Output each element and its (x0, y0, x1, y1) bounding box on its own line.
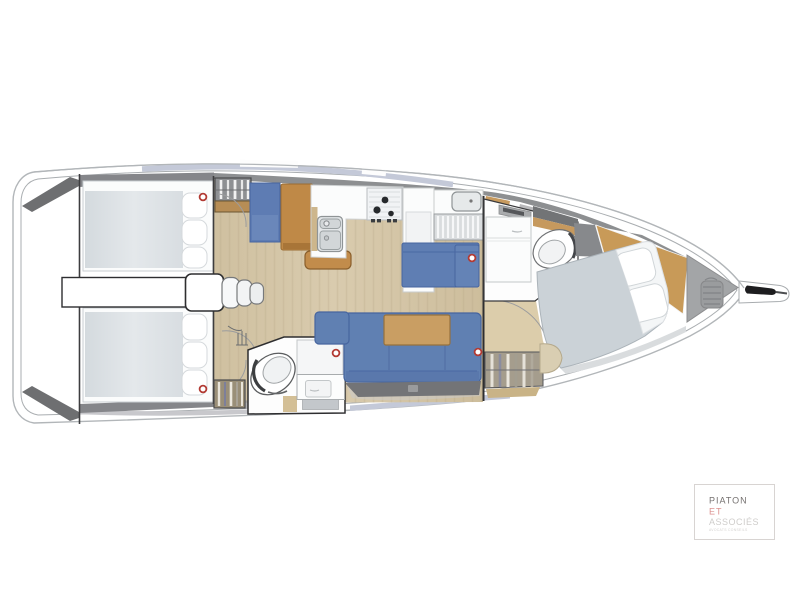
svg-text:AVOCATS CONSEILS: AVOCATS CONSEILS (709, 528, 748, 532)
svg-text:ET: ET (709, 507, 723, 517)
svg-text:PIATON: PIATON (709, 496, 748, 506)
svg-text:ASSOCIÉS: ASSOCIÉS (709, 517, 759, 527)
